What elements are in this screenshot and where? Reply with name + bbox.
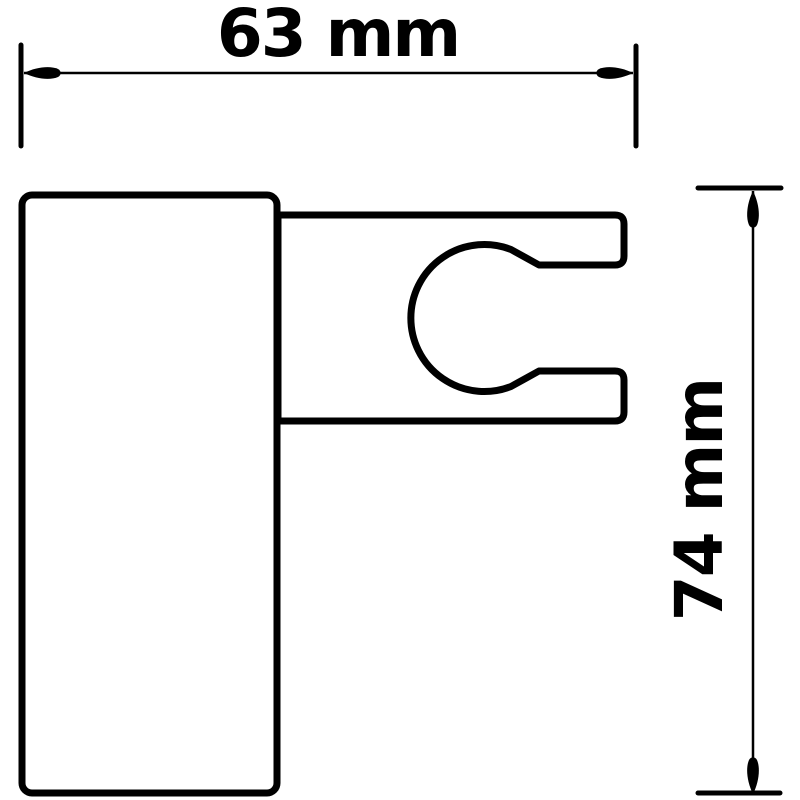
holder-clip-outline [278,215,624,421]
width-dimension-label: 63 mm [217,1,459,67]
height-dimension-label: 74 mm [667,379,733,621]
width-arrow-right-icon [596,67,633,79]
height-arrow-bottom-icon [747,757,759,794]
width-arrow-left-icon [24,67,61,79]
technical-drawing-page: { "drawing": { "type": "technical-dimens… [0,0,800,800]
holder-body-outline [22,195,277,793]
height-arrow-top-icon [747,191,759,228]
